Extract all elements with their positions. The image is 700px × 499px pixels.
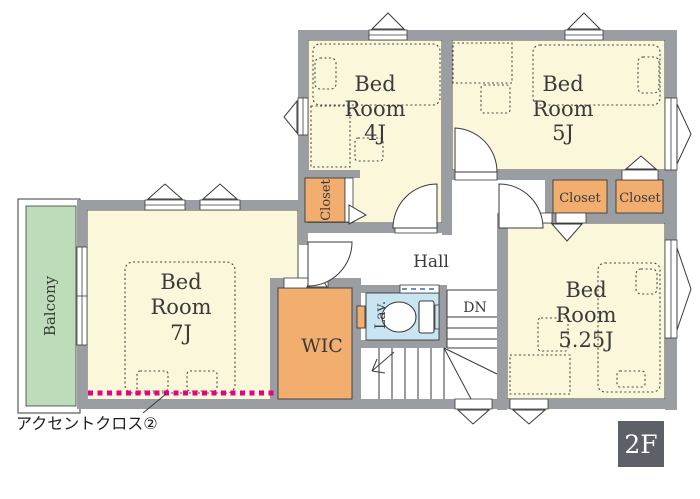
hall-label: Hall bbox=[413, 252, 449, 272]
closet-5j-left-label: Closet bbox=[559, 191, 601, 206]
closet-5j-left-opening bbox=[556, 213, 586, 223]
bedroom-525j-label: Room bbox=[555, 303, 616, 327]
wic-label: WIC bbox=[301, 335, 343, 357]
closet-4j-label: Closet bbox=[319, 178, 334, 220]
floor-plan-drawing: Bed Room 4J Bed Room 5J Bed Room 7J Bed … bbox=[0, 0, 700, 499]
toilet-icon bbox=[382, 301, 439, 333]
stairs-dn-label: DN bbox=[463, 300, 486, 316]
stair-direction-line bbox=[372, 352, 394, 371]
balcony-label: Balcony bbox=[41, 275, 59, 336]
window-triangle-icon bbox=[284, 101, 297, 133]
door-arc-525j bbox=[499, 184, 543, 228]
bedroom-5j-size: 5J bbox=[552, 121, 574, 145]
bedroom-5j-label: Room bbox=[532, 97, 593, 121]
bedroom-7j-size: 7J bbox=[170, 321, 192, 345]
lav-shelf bbox=[357, 306, 365, 328]
bedroom-7j-label: Bed bbox=[160, 270, 201, 294]
bedroom-525j-label: Bed bbox=[565, 278, 606, 302]
bedroom-4j-label: Room bbox=[344, 97, 405, 121]
winder-line bbox=[444, 348, 471, 399]
closet-5j-right-opening bbox=[622, 170, 658, 180]
window-triangle-icon bbox=[203, 184, 237, 199]
window-triangle-icon bbox=[677, 248, 691, 330]
winder-line bbox=[444, 348, 497, 374]
bedroom-525j-size: 5.25J bbox=[558, 328, 613, 352]
closet-5j-right-label: Closet bbox=[619, 191, 661, 206]
lav-label: Lav. bbox=[373, 301, 389, 329]
window-triangle-icon bbox=[677, 104, 691, 164]
bedroom-4j-label: Bed bbox=[354, 72, 395, 96]
window-triangle-icon bbox=[458, 410, 489, 424]
window-525j-bottom bbox=[510, 399, 548, 409]
bedroom-7j-label: Room bbox=[150, 295, 211, 319]
window-triangle-icon bbox=[148, 184, 182, 199]
bedroom-4j-size: 4J bbox=[364, 121, 386, 145]
floor-badge-label: 2F bbox=[624, 430, 657, 459]
window-stairs-bottom bbox=[455, 399, 492, 409]
window-triangle-icon bbox=[513, 410, 545, 424]
accent-cloth-annotation: アクセントクロス② bbox=[16, 414, 158, 433]
floor-plan-page: Bed Room 4J Bed Room 5J Bed Room 7J Bed … bbox=[0, 0, 700, 499]
window-triangle-icon bbox=[568, 13, 600, 29]
window-triangle-icon bbox=[372, 13, 404, 29]
bedroom-5j-label: Bed bbox=[542, 72, 583, 96]
